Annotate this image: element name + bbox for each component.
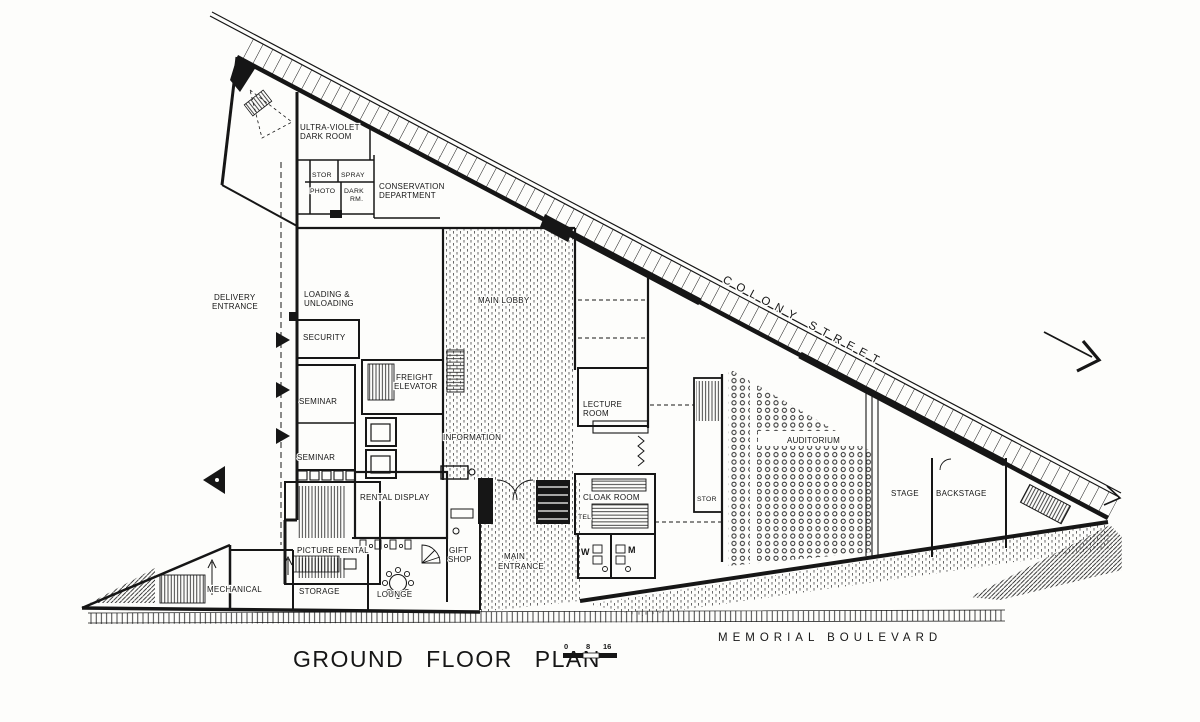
- label-conservation-2: DEPARTMENT: [379, 191, 436, 200]
- label-stor-small: STOR: [312, 172, 332, 179]
- stair-icon: [368, 364, 394, 400]
- label-main-entrance-1: MAIN: [504, 552, 525, 561]
- label-ultra-violet-1: ULTRA-VIOLET: [300, 123, 360, 132]
- label-memorial-boulevard: MEMORIAL BOULEVARD: [718, 632, 942, 644]
- label-photo-rm: RM.: [350, 196, 363, 203]
- scale-segment: [599, 653, 617, 658]
- label-photo-dark: DARK: [344, 188, 364, 195]
- label-delivery-2: ENTRANCE: [212, 302, 258, 311]
- label-mechanical: MECHANICAL: [207, 585, 262, 594]
- label-main-lobby: MAIN LOBBY: [478, 296, 530, 305]
- label-stor-auditorium: STOR: [697, 496, 717, 503]
- label-ultra-violet-2: DARK ROOM: [300, 132, 352, 141]
- scale-segment: [563, 653, 583, 658]
- label-seminar-lower: SEMINAR: [297, 453, 335, 462]
- scale-zero: 0: [564, 642, 568, 651]
- label-backstage: BACKSTAGE: [936, 489, 987, 498]
- label-men: M: [628, 545, 636, 555]
- label-conservation-1: CONSERVATION: [379, 182, 445, 191]
- label-freight-2: ELEVATOR: [394, 382, 437, 391]
- aisle: [750, 374, 757, 568]
- label-lecture-1: LECTURE: [583, 400, 622, 409]
- floor-plan-sheet: ULTRA-VIOLET DARK ROOM STOR SPRAY PHOTO …: [0, 0, 1200, 722]
- marker-dot: [215, 478, 219, 482]
- label-gift-2: SHOP: [448, 555, 472, 564]
- label-auditorium: AUDITORIUM: [787, 436, 840, 445]
- stair-icon: [293, 556, 339, 572]
- label-women: W: [581, 547, 590, 557]
- door-poche: [289, 312, 298, 321]
- label-spray: SPRAY: [341, 172, 365, 179]
- label-delivery-1: DELIVERY: [214, 293, 256, 302]
- label-seminar-upper: SEMINAR: [299, 397, 337, 406]
- label-rental-display: RENTAL DISPLAY: [360, 493, 430, 502]
- label-freight-1: FREIGHT: [396, 373, 433, 382]
- label-cloak-room: CLOAK ROOM: [583, 493, 640, 502]
- label-picture-rental: PICTURE RENTAL: [297, 546, 369, 555]
- scale-segment: [583, 653, 599, 658]
- rack-shelving: [297, 486, 345, 538]
- label-loading-2: UNLOADING: [304, 299, 354, 308]
- stair-icon: [447, 350, 464, 392]
- floor-plan-drawing: ULTRA-VIOLET DARK ROOM STOR SPRAY PHOTO …: [0, 0, 1200, 722]
- label-loading-1: LOADING &: [304, 290, 350, 299]
- stair-icon: [160, 575, 205, 603]
- title-block: GROUND FLOOR PLAN 0 8 16: [293, 642, 617, 672]
- label-lecture-2: ROOM: [583, 409, 609, 418]
- scale-sixteen: 16: [603, 642, 611, 651]
- label-stage: STAGE: [891, 489, 919, 498]
- coat-rack: [592, 504, 648, 528]
- label-security: SECURITY: [303, 333, 346, 342]
- entrance-wall-poche: [478, 478, 493, 524]
- label-tel: TEL: [578, 514, 591, 521]
- page-title: GROUND FLOOR PLAN: [293, 646, 601, 672]
- label-information: INFORMATION: [443, 433, 501, 442]
- label-storage: STORAGE: [299, 587, 340, 596]
- label-lounge: LOUNGE: [377, 590, 412, 599]
- scale-eight: 8: [586, 642, 590, 651]
- stair-icon: [696, 381, 720, 421]
- label-gift-1: GIFT: [449, 546, 468, 555]
- label-photo: PHOTO: [310, 188, 335, 195]
- coat-rack: [592, 479, 646, 491]
- door-poche: [330, 210, 342, 218]
- label-main-entrance-2: ENTRANCE: [498, 562, 544, 571]
